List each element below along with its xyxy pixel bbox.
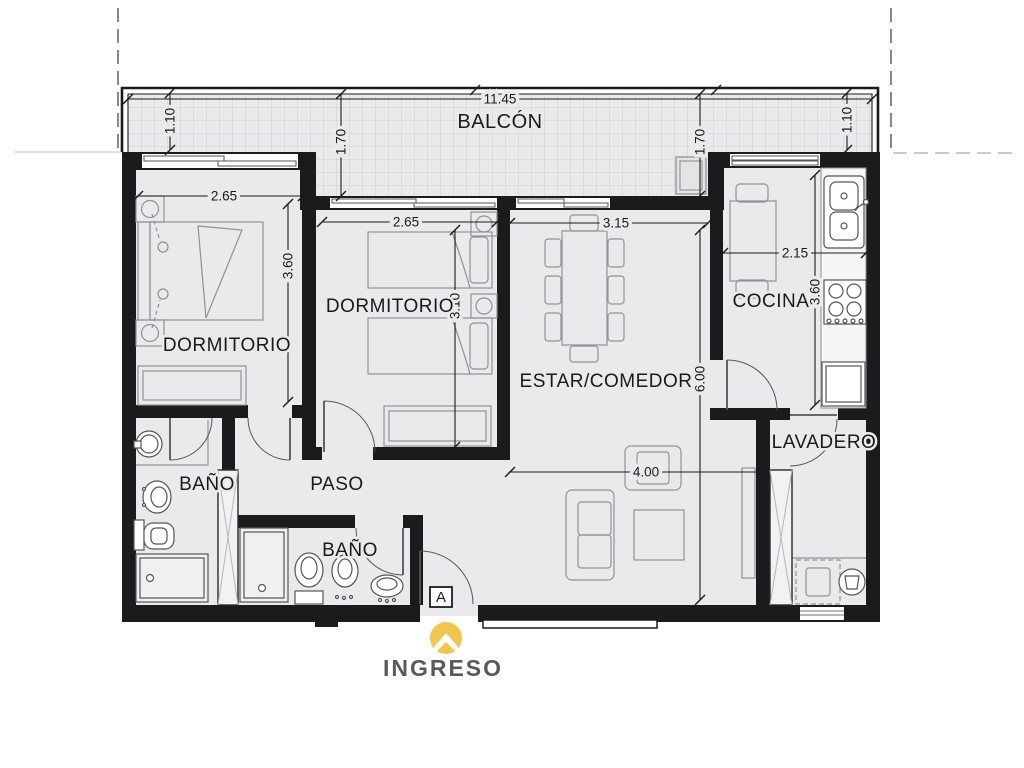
dim-bedroom1-width: 2.65 <box>211 189 237 204</box>
dim-kitchen-depth: 3.60 <box>808 279 823 305</box>
balcony-equipment-unit <box>676 157 706 194</box>
room-label-bathroom1: BAÑO <box>179 473 235 495</box>
entrance-label: INGRESO <box>383 655 503 681</box>
dim-balcony-depth-midright: 1.70 <box>693 129 708 155</box>
dim-bedroom2-width: 2.65 <box>393 215 419 230</box>
dim-balcony-depth-left: 1.10 <box>163 108 178 134</box>
dim-balcony-depth-midleft: 1.70 <box>334 129 349 155</box>
dim-living-lower-width: 4.00 <box>633 465 659 480</box>
bedroom2-window <box>330 198 497 208</box>
dim-bedroom1-depth: 3.60 <box>281 253 296 279</box>
laundry-sink <box>839 569 865 595</box>
kitchen-window <box>730 154 820 166</box>
room-label-living-dining: ESTAR/COMEDOR <box>520 371 693 392</box>
room-label-bathroom2: BAÑO <box>322 539 378 561</box>
dim-balcony-width: 11.45 <box>484 92 517 107</box>
dim-kitchen-width: 2.15 <box>782 246 808 261</box>
home-chevron-icon <box>430 622 462 654</box>
floorplan-canvas: 11.45 1.10 1.70 1.70 1.10 2.65 3.60 2.65… <box>0 0 1024 768</box>
bedroom1-window <box>142 154 298 168</box>
dim-living-width: 3.15 <box>603 216 629 231</box>
toilet-tank <box>295 591 323 604</box>
room-label-bedroom1: DORMITORIO <box>163 335 291 356</box>
laundry-exterior-window <box>800 607 844 620</box>
kitchen-sink <box>824 176 869 248</box>
living-window <box>516 198 610 208</box>
dim-balcony-depth-right: 1.10 <box>840 107 855 133</box>
toilet-tank <box>134 520 144 550</box>
dim-living-depth: 6.00 <box>693 366 708 392</box>
floorplan-drawing: 11.45 1.10 1.70 1.70 1.10 2.65 3.60 2.65… <box>0 0 1024 768</box>
room-label-kitchen: COCINA <box>733 291 810 312</box>
room-label-bedroom2: DORMITORIO <box>326 296 454 317</box>
room-label-hallway: PASO <box>310 474 363 495</box>
shaft-laundry <box>770 470 792 605</box>
entry-step <box>483 620 657 628</box>
stove <box>824 280 866 324</box>
room-label-balcony: BALCÓN <box>457 110 542 133</box>
room-label-laundry: LAVADERO <box>772 432 877 453</box>
section-marker-label: A <box>436 589 446 606</box>
fridge <box>822 362 865 406</box>
